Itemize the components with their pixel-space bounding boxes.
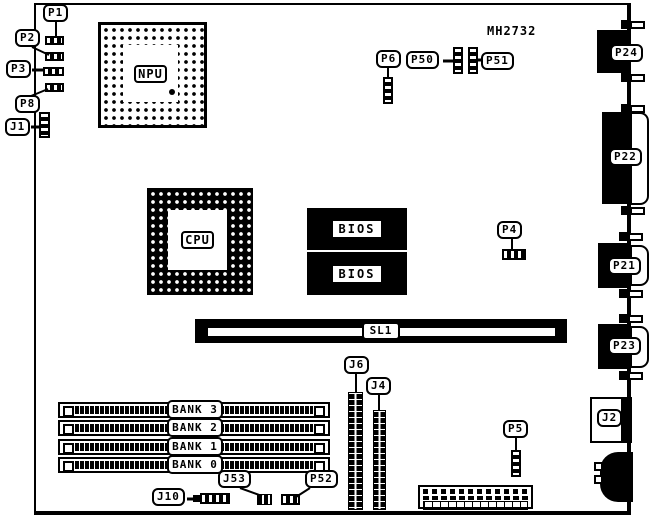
p24-callout: P24: [610, 44, 643, 62]
p4-callout: P4: [497, 221, 522, 239]
j1-callout: J1: [5, 118, 30, 136]
p21-callout: P21: [608, 257, 641, 275]
p8-callout: P8: [15, 95, 40, 113]
j2-callout: J2: [597, 409, 622, 427]
p23-callout: P23: [608, 337, 641, 355]
j4-callout: J4: [366, 377, 391, 395]
p51-callout: P51: [481, 52, 514, 70]
p3-callout: P3: [6, 60, 31, 78]
p6-callout: P6: [376, 50, 401, 68]
p1-callout: P1: [43, 4, 68, 22]
motherboard-diagram: MH2732 NPU CPU BIOS BIOS SL1: [0, 0, 649, 519]
leader-line: [240, 488, 262, 496]
leader-line: [296, 488, 310, 497]
j53-callout: J53: [218, 470, 251, 488]
j10-callout: J10: [152, 488, 185, 506]
p22-callout: P22: [609, 148, 642, 166]
p5-callout: P5: [503, 420, 528, 438]
p50-callout: P50: [406, 51, 439, 69]
leader-line: [32, 47, 49, 55]
p52-callout: P52: [305, 470, 338, 488]
j6-callout: J6: [344, 356, 369, 374]
leader-lines: [0, 0, 649, 519]
p2-callout: P2: [15, 29, 40, 47]
